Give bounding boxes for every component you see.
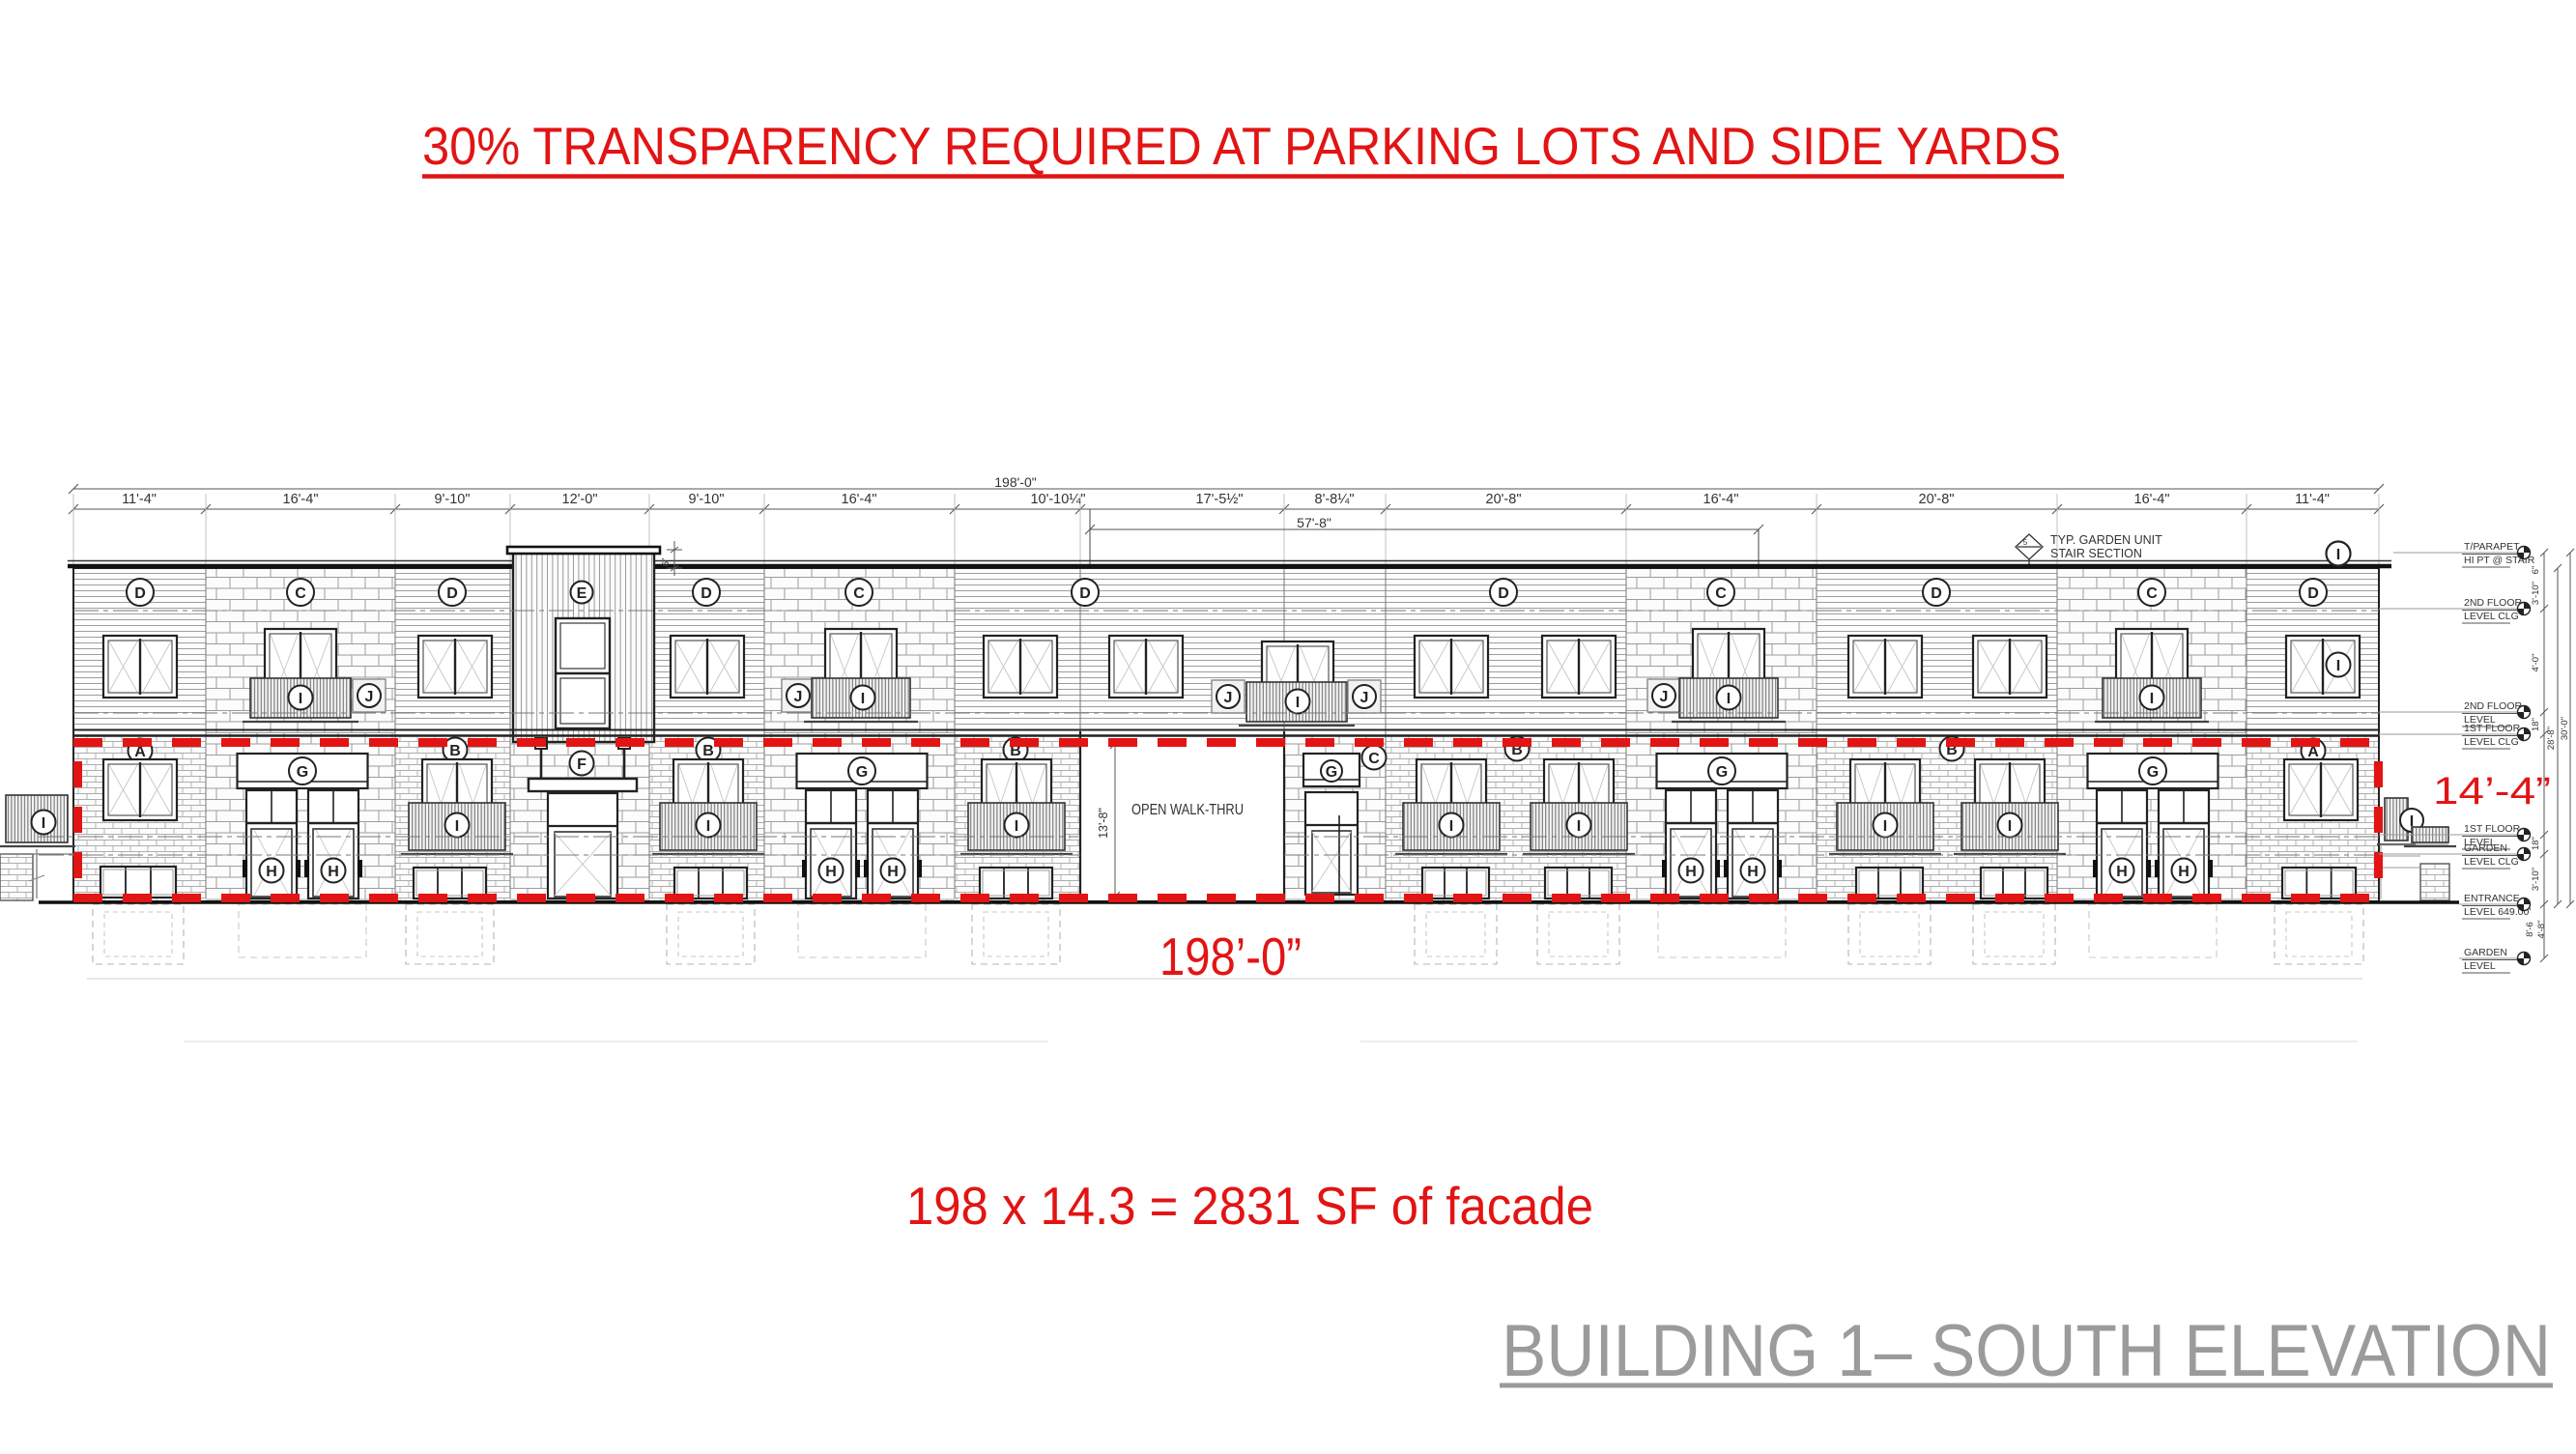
svg-text:D: D (1498, 585, 1509, 602)
svg-text:16'-4": 16'-4" (842, 492, 877, 507)
svg-text:G: G (297, 764, 308, 781)
svg-text:F: F (577, 756, 587, 773)
svg-text:10'-10¼": 10'-10¼" (1030, 492, 1085, 507)
svg-text:I: I (42, 815, 45, 832)
svg-text:OPEN WALK-THRU: OPEN WALK-THRU (1131, 802, 1244, 818)
svg-text:J: J (1660, 689, 1669, 705)
svg-text:9'-10": 9'-10" (435, 492, 471, 507)
svg-text:H: H (825, 864, 837, 880)
svg-text:H: H (887, 864, 899, 880)
svg-text:D: D (2307, 585, 2319, 602)
svg-text:17'-5½": 17'-5½" (1195, 492, 1243, 507)
svg-text:13'-8": 13'-8" (1097, 808, 1110, 839)
svg-text:BUILDING 1– SOUTH ELEVATION: BUILDING 1– SOUTH ELEVATION (1502, 1310, 2551, 1392)
svg-text:H: H (1747, 864, 1759, 880)
svg-text:16'-4": 16'-4" (2134, 492, 2170, 507)
svg-text:C: C (2146, 585, 2158, 602)
svg-text:LEVEL CLG: LEVEL CLG (2464, 736, 2519, 748)
svg-text:12'-0": 12'-0" (562, 492, 598, 507)
svg-text:G: G (2147, 764, 2159, 781)
svg-text:30% TRANSPARENCY REQUIRED AT P: 30% TRANSPARENCY REQUIRED AT PARKING LOT… (422, 116, 2061, 176)
svg-text:J: J (1360, 690, 1369, 706)
svg-text:J: J (365, 689, 374, 705)
svg-text:3'-10": 3'-10" (2531, 582, 2541, 605)
svg-text:G: G (1326, 764, 1337, 781)
svg-text:I: I (2150, 691, 2154, 707)
svg-text:3'-10": 3'-10" (2531, 868, 2541, 891)
svg-text:C: C (853, 585, 865, 602)
svg-text:I: I (2336, 658, 2340, 674)
svg-text:GARDEN: GARDEN (2464, 947, 2507, 958)
svg-text:B: B (449, 743, 461, 759)
svg-text:LEVEL: LEVEL (2464, 960, 2496, 972)
svg-text:57'-8": 57'-8" (1297, 515, 1331, 530)
svg-text:I: I (455, 818, 459, 835)
svg-text:G: G (1716, 764, 1728, 781)
svg-text:I: I (1015, 818, 1018, 835)
svg-text:H: H (2178, 864, 2190, 880)
svg-text:LEVEL CLG: LEVEL CLG (2464, 611, 2519, 622)
svg-text:18": 18" (2531, 718, 2541, 731)
svg-text:4'-8": 4'-8" (2536, 921, 2547, 939)
svg-text:D: D (134, 585, 146, 602)
svg-text:I: I (1727, 691, 1731, 707)
svg-text:30'-0": 30'-0" (2560, 717, 2570, 740)
svg-text:H: H (1685, 864, 1697, 880)
svg-text:C: C (1715, 585, 1727, 602)
svg-text:16'-4": 16'-4" (1703, 492, 1739, 507)
svg-text:ENTRANCE: ENTRANCE (2464, 893, 2520, 904)
svg-text:H: H (266, 864, 277, 880)
svg-text:28'-8": 28'-8" (2546, 727, 2557, 750)
svg-text:198’-0”: 198’-0” (1159, 927, 1302, 986)
svg-text:8'-8¼": 8'-8¼" (1315, 492, 1355, 507)
svg-text:GARDEN: GARDEN (2464, 842, 2507, 854)
svg-text:J: J (794, 689, 803, 705)
svg-text:6": 6" (661, 557, 672, 567)
svg-text:C: C (1368, 751, 1380, 767)
svg-text:D: D (1931, 585, 1942, 602)
svg-text:B: B (702, 743, 714, 759)
svg-text:D: D (446, 585, 458, 602)
svg-text:E: E (577, 585, 587, 602)
svg-text:I: I (1883, 818, 1887, 835)
svg-text:I: I (706, 818, 710, 835)
svg-text:18": 18" (2531, 837, 2541, 850)
svg-text:I: I (299, 691, 302, 707)
svg-text:2ND FLOOR: 2ND FLOOR (2464, 700, 2523, 712)
svg-text:8'-6: 8'-6 (2525, 922, 2535, 937)
svg-text:J: J (1224, 690, 1233, 706)
svg-text:5: 5 (2023, 538, 2028, 547)
svg-text:I: I (1577, 818, 1581, 835)
svg-text:20'-8": 20'-8" (1919, 492, 1955, 507)
svg-text:D: D (1079, 585, 1091, 602)
svg-text:I: I (2336, 547, 2340, 563)
svg-text:I: I (2008, 818, 2012, 835)
svg-text:H: H (328, 864, 339, 880)
svg-text:C: C (295, 585, 306, 602)
svg-text:4'-0": 4'-0" (2531, 654, 2541, 672)
svg-text:LEVEL CLG: LEVEL CLG (2464, 856, 2519, 868)
svg-text:2ND FLOOR: 2ND FLOOR (2464, 597, 2523, 609)
svg-text:11'-4": 11'-4" (2295, 492, 2330, 507)
svg-text:I: I (861, 691, 865, 707)
svg-text:11'-4": 11'-4" (122, 492, 157, 507)
svg-text:1ST FLOOR: 1ST FLOOR (2464, 823, 2521, 835)
svg-text:I: I (1296, 695, 1300, 711)
svg-text:STAIR SECTION: STAIR SECTION (2050, 547, 2142, 560)
svg-text:16'-4": 16'-4" (283, 492, 319, 507)
svg-text:1ST FLOOR: 1ST FLOOR (2464, 723, 2521, 734)
svg-text:6": 6" (2531, 566, 2541, 575)
svg-text:H: H (2116, 864, 2128, 880)
svg-text:198 x 14.3 = 2831 SF of facade: 198 x 14.3 = 2831 SF of facade (906, 1176, 1593, 1236)
svg-text:198'-0": 198'-0" (994, 474, 1036, 490)
svg-text:D: D (701, 585, 712, 602)
svg-text:I: I (1449, 818, 1453, 835)
svg-text:T/PARAPET: T/PARAPET (2464, 541, 2520, 553)
svg-text:G: G (856, 764, 868, 781)
svg-text:14’-4”: 14’-4” (2433, 770, 2551, 813)
svg-text:9'-10": 9'-10" (689, 492, 725, 507)
svg-text:TYP. GARDEN UNIT: TYP. GARDEN UNIT (2050, 533, 2162, 547)
svg-text:20'-8": 20'-8" (1486, 492, 1522, 507)
